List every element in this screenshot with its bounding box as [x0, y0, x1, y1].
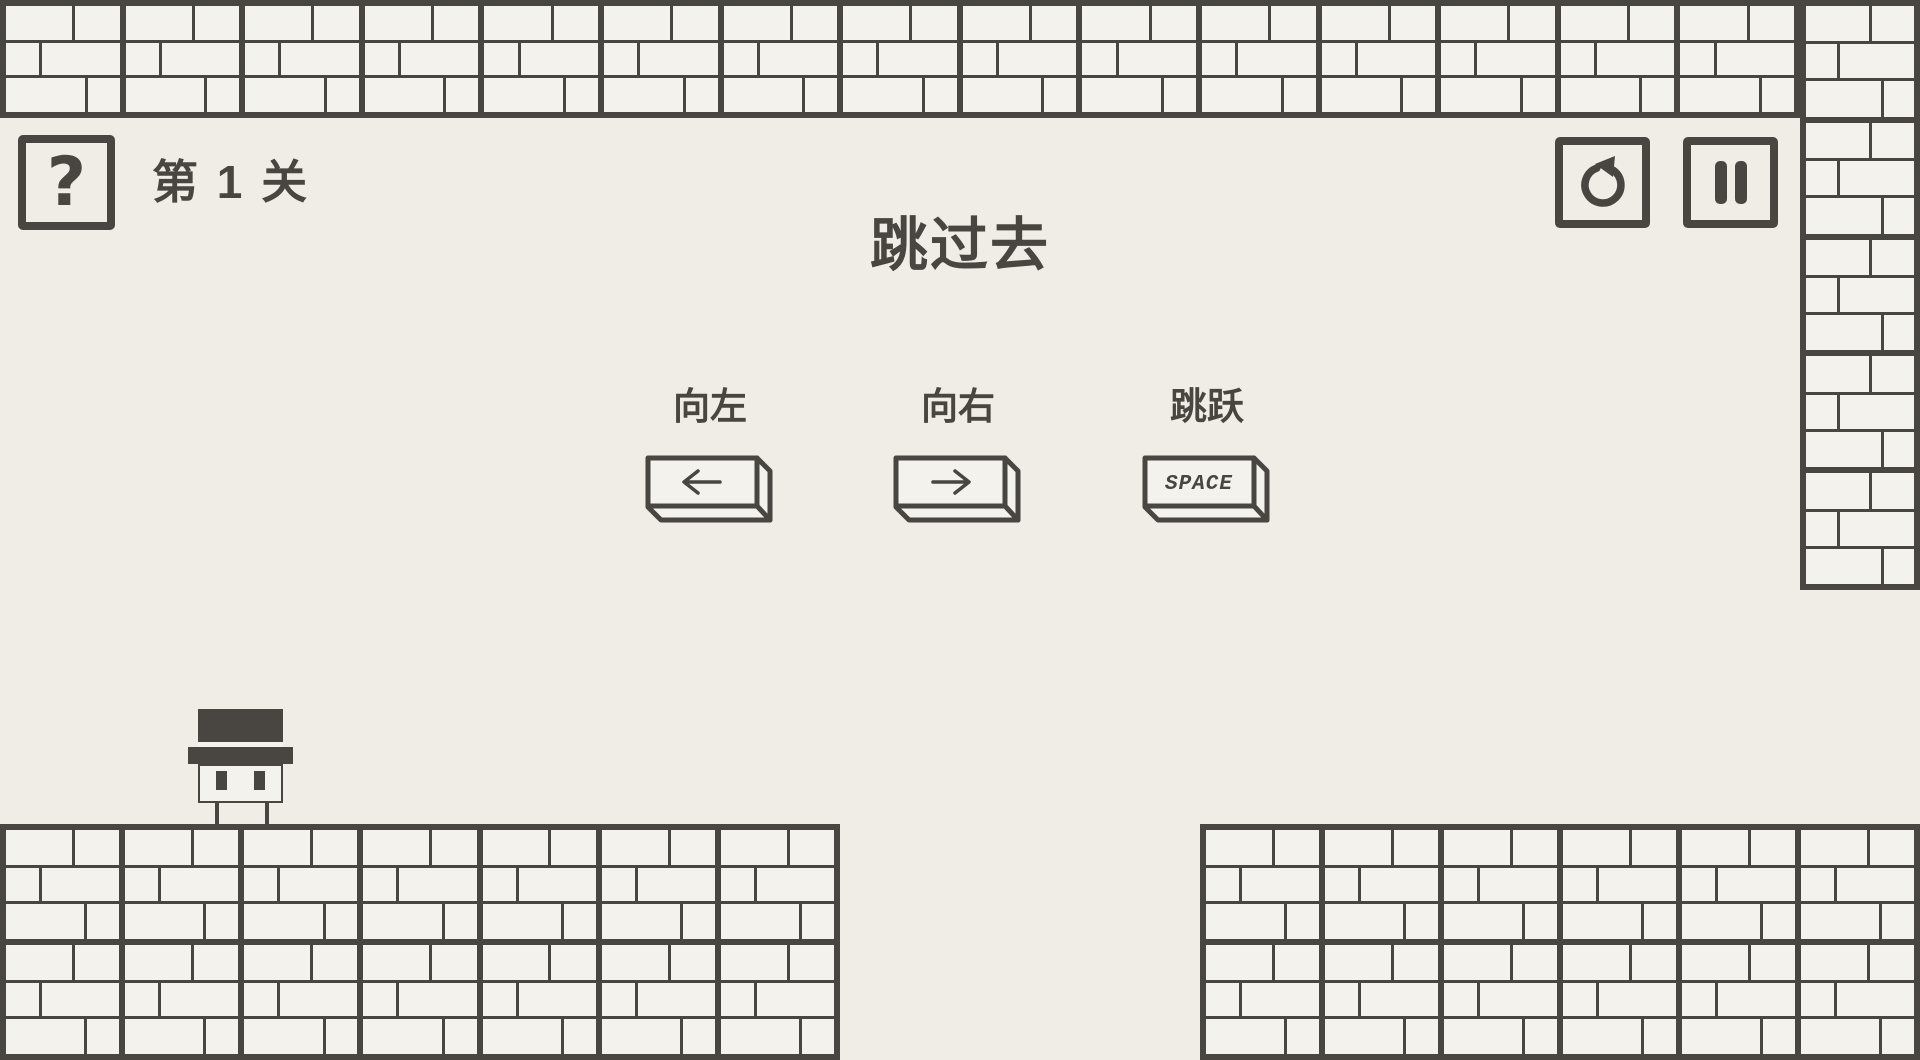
left-arrow-key-icon [644, 454, 776, 524]
brick-block [3, 3, 123, 115]
brick-block [123, 3, 243, 115]
brick-block [1441, 942, 1560, 1057]
brick-block [599, 827, 718, 942]
brick-block [1798, 942, 1917, 1057]
hat-brim [188, 747, 293, 764]
pause-button[interactable] [1683, 137, 1778, 228]
right-eye [254, 771, 265, 790]
brick-block [1319, 3, 1439, 115]
brick-block [599, 942, 718, 1057]
brick-block [1560, 942, 1679, 1057]
brick-block [1679, 827, 1798, 942]
left-leg [215, 803, 219, 825]
control-label-jump: 跳跃 [1141, 386, 1273, 428]
brick-block [362, 3, 482, 115]
brick-block [1203, 942, 1322, 1057]
brick-block [242, 3, 362, 115]
game-stage: ? 第 1 关 跳过去 向左 向右 跳跃 [0, 0, 1920, 1060]
left-eye [216, 771, 227, 790]
left-brick-platform [0, 824, 840, 1060]
restart-button[interactable] [1555, 137, 1650, 228]
control-label-left: 向左 [644, 386, 776, 428]
space-key-icon: SPACE [1141, 454, 1273, 524]
brick-block [1441, 827, 1560, 942]
pause-icon [1702, 154, 1760, 212]
brick-block [1803, 353, 1917, 470]
brick-block [721, 3, 841, 115]
brick-block [718, 942, 837, 1057]
brick-block [122, 942, 241, 1057]
brick-block [1560, 827, 1679, 942]
brick-block [3, 827, 122, 942]
brick-block [1798, 827, 1917, 942]
brick-block [1199, 3, 1319, 115]
right-arrow-key-icon [892, 454, 1024, 524]
brick-block [241, 827, 360, 942]
brick-block [480, 827, 599, 942]
brick-block [1079, 3, 1199, 115]
right-brick-platform [1200, 824, 1920, 1060]
restart-icon [1574, 154, 1632, 212]
brick-block [1203, 827, 1322, 942]
brick-block [122, 827, 241, 942]
brick-block [1803, 3, 1917, 120]
brick-block [480, 942, 599, 1057]
brick-block [718, 827, 837, 942]
brick-block [3, 942, 122, 1057]
character-head [198, 764, 283, 803]
brick-block [360, 942, 479, 1057]
top-brick-wall [0, 0, 1800, 118]
brick-block [1438, 3, 1558, 115]
space-key-label: SPACE [1165, 473, 1233, 496]
hat-crown [198, 709, 283, 742]
brick-block [601, 3, 721, 115]
player-character [188, 709, 293, 825]
brick-block [1322, 827, 1441, 942]
brick-block [840, 3, 960, 115]
brick-block [360, 827, 479, 942]
control-hint-jump: 跳跃 SPACE [1141, 386, 1273, 524]
brick-block [1322, 942, 1441, 1057]
brick-block [960, 3, 1080, 115]
brick-block [1677, 3, 1797, 115]
control-label-right: 向右 [892, 386, 1024, 428]
brick-block [1679, 942, 1798, 1057]
brick-block [481, 3, 601, 115]
control-hint-left: 向左 [644, 386, 776, 524]
control-hint-right: 向右 [892, 386, 1024, 524]
right-leg [265, 803, 269, 825]
brick-block [1558, 3, 1678, 115]
brick-block [241, 942, 360, 1057]
brick-block [1803, 470, 1917, 587]
right-brick-column [1800, 0, 1920, 590]
